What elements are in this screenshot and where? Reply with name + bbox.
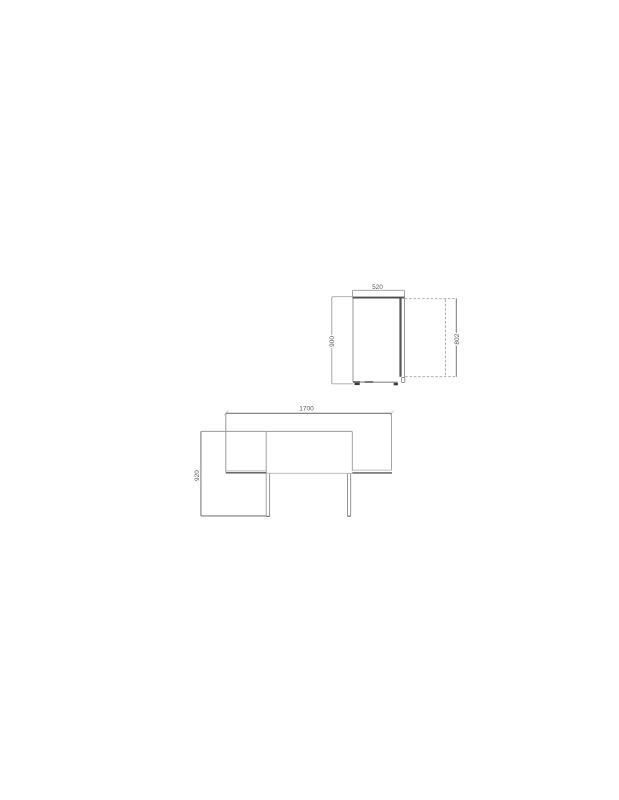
svg-text:900: 900 [329,336,336,347]
svg-text:1700: 1700 [299,406,314,413]
svg-text:802: 802 [454,333,461,344]
svg-text:920: 920 [194,470,201,481]
svg-text:520: 520 [372,284,383,291]
